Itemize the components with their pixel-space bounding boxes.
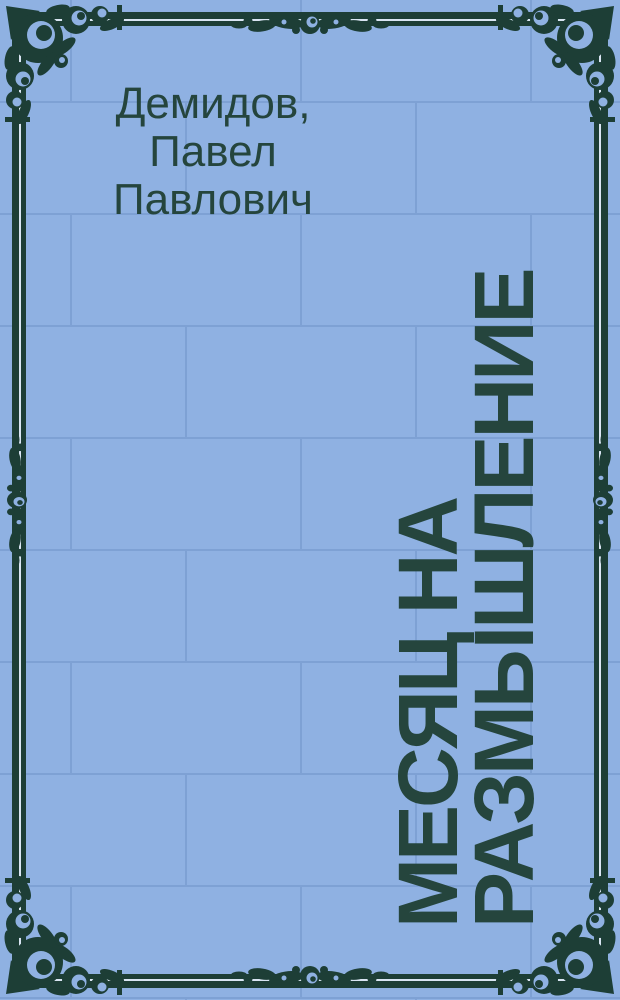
title-line-2: РАЗМЫШЛЕНИЕ [466, 228, 542, 928]
corner-ornament-bottom-left [3, 874, 126, 997]
book-cover: Демидов, Павел Павлович МЕСЯЦ НА РАЗМЫШЛ… [0, 0, 620, 1000]
book-title: МЕСЯЦ НА РАЗМЫШЛЕНИЕ [390, 228, 542, 928]
title-line-1: МЕСЯЦ НА [390, 228, 466, 928]
author-line-1: Демидов, [40, 80, 386, 128]
corner-ornament-top-right [494, 3, 617, 126]
author-name: Демидов, Павел Павлович [40, 80, 386, 224]
author-line-3: Павлович [40, 176, 386, 224]
author-line-2: Павел [40, 128, 386, 176]
